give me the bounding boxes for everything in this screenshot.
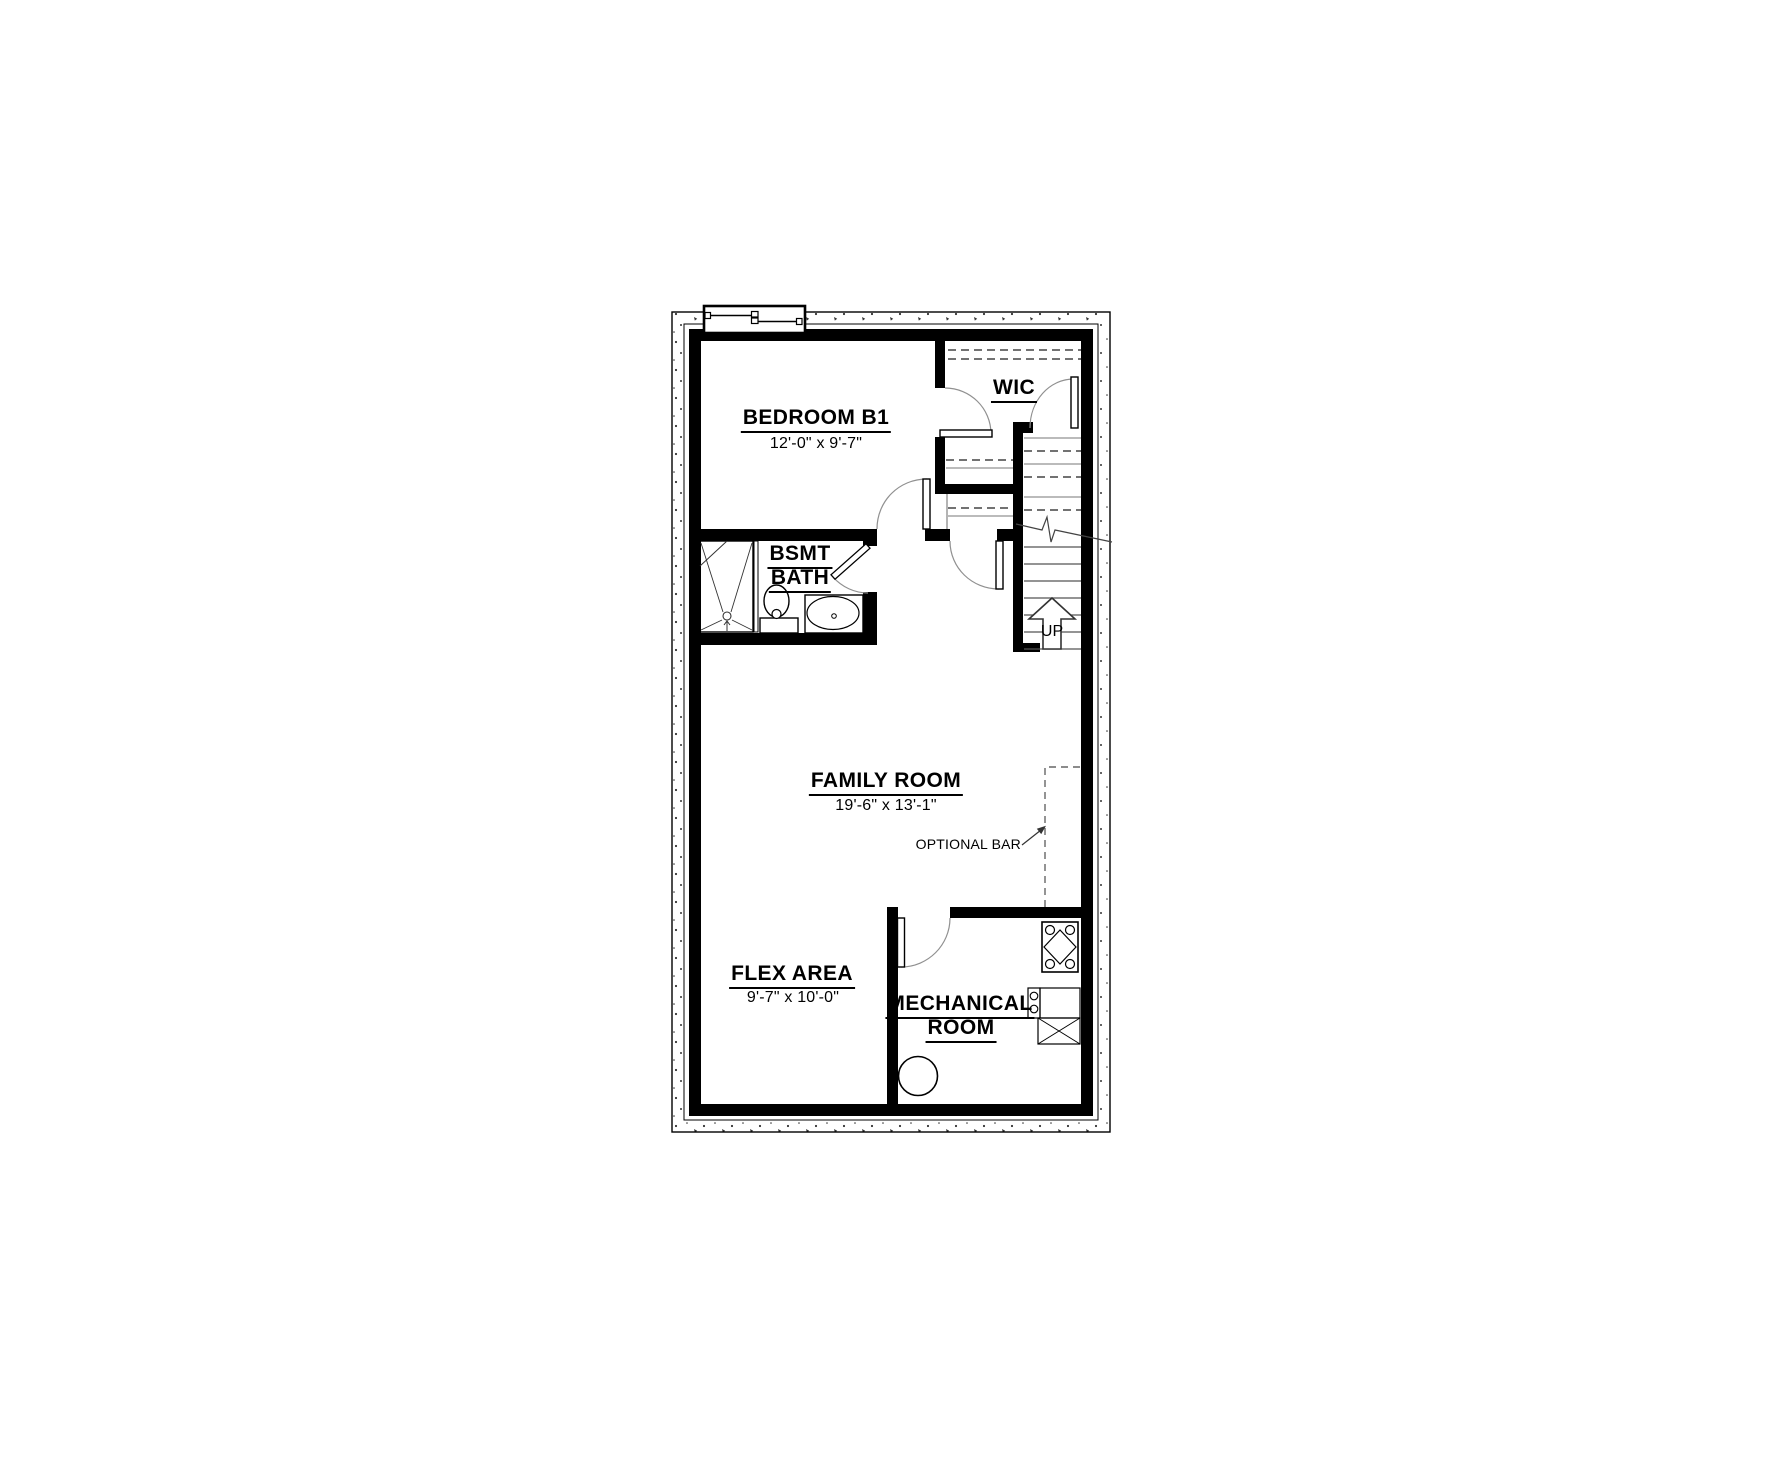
vanity-sink — [805, 595, 863, 633]
water-softener — [1028, 988, 1080, 1044]
mechanical-room-label-line2: ROOM — [926, 1017, 997, 1043]
floor-plan-page: BEDROOM B1 12'-0" x 9'-7" WIC BSMT BATH … — [0, 0, 1780, 1480]
stairs-up-label: UP — [1041, 623, 1063, 640]
door-bath — [831, 544, 870, 593]
flex-area-dims: 9'-7" x 10'-0" — [747, 989, 839, 1006]
doors — [831, 377, 1078, 967]
furnace — [1042, 922, 1078, 972]
flex-area-label: FLEX AREA — [729, 963, 855, 989]
optional-bar-outline — [1022, 767, 1081, 907]
door-wic-landing — [1030, 377, 1078, 428]
optional-bar-label: OPTIONAL BAR — [916, 836, 1021, 852]
egress-window — [704, 306, 805, 333]
door-mechanical-room — [898, 918, 951, 967]
floor-plan-drawing — [0, 0, 1780, 1480]
door-understair-storage — [950, 541, 1003, 589]
shower — [700, 541, 758, 632]
bedroom-dims: 12'-0" x 9'-7" — [770, 435, 862, 452]
water-heater — [899, 1057, 938, 1096]
bath-label-line2: BATH — [769, 567, 831, 593]
door-bedroom-entry — [877, 479, 930, 529]
leader-line — [1022, 830, 1041, 845]
bedroom-label: BEDROOM B1 — [741, 407, 891, 433]
door-bedroom-to-wic — [940, 388, 992, 437]
wic-label: WIC — [991, 377, 1037, 403]
family-room-label: FAMILY ROOM — [809, 770, 963, 796]
family-room-dims: 19'-6" x 13'-1" — [835, 797, 936, 814]
